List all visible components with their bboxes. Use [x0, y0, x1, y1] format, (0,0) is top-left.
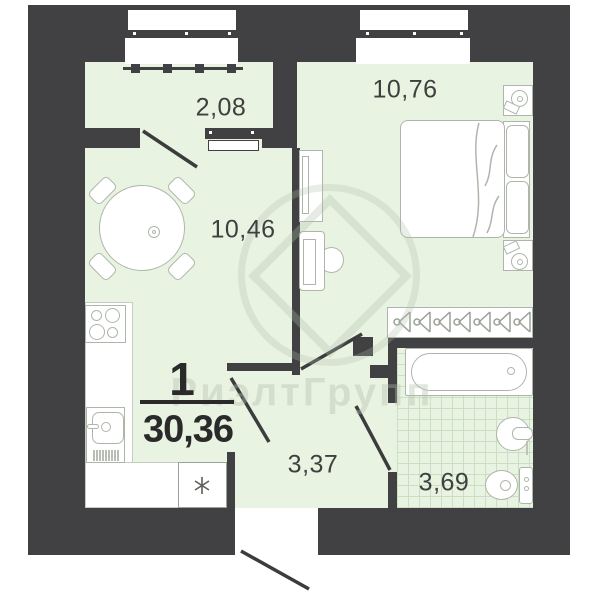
faucet-icon: [101, 422, 111, 432]
cistern-button: [524, 486, 529, 491]
area-label-bathroom: 3,69: [419, 469, 470, 498]
balcony-rail-post: [131, 64, 140, 73]
entrance-door-swing: [241, 551, 309, 589]
balcony-rail: [123, 67, 243, 70]
bedroom-window-inner: [356, 38, 470, 64]
bedroom-window-outer: [360, 10, 468, 30]
total-area-label: 30,36: [143, 409, 233, 452]
wall-balcony-bedroom: [273, 62, 297, 148]
wall-balcony-living-right: [262, 128, 273, 148]
stove-burner: [91, 310, 102, 321]
window-tick: [209, 131, 212, 134]
stove-burner: [105, 308, 120, 323]
bed-pillow: [506, 125, 529, 178]
cistern-button: [524, 477, 529, 482]
wall-right: [533, 5, 570, 555]
window-tick: [413, 32, 416, 35]
bed-mattress: [400, 120, 505, 238]
wall-top: [28, 5, 570, 62]
stove-burner: [89, 324, 105, 340]
toilet-drain: [500, 480, 511, 491]
window-tick: [251, 131, 254, 134]
wall-bathroom-top: [388, 338, 533, 348]
bathtub-drain: [507, 367, 515, 375]
washbasin-tap: [512, 427, 533, 440]
area-label-living: 10,46: [210, 216, 275, 245]
wall-bottom-left: [28, 508, 235, 555]
wall-bottom-right: [318, 508, 570, 555]
floor-plan: РиэлтГрупп 2,08 10,76 10,46 3,37 3,69 1 …: [0, 0, 600, 600]
balcony-rail-post: [163, 64, 172, 73]
window-tick: [185, 32, 188, 35]
window-tick: [366, 32, 369, 35]
window-tick: [228, 32, 231, 35]
balcony-door-panel: [208, 140, 259, 151]
dining-table: [99, 185, 185, 271]
fraction-line: [140, 400, 234, 404]
wall-kitchen-door-stub: [227, 452, 235, 508]
lamp-icon: [517, 259, 523, 265]
table-center-mark: [152, 230, 156, 234]
wall-left: [28, 5, 85, 555]
area-label-bedroom: 10,76: [372, 76, 437, 105]
balcony-rail-post: [227, 64, 236, 73]
faucet-handle: [87, 424, 99, 429]
balcony-window-outer: [128, 10, 236, 30]
rooms-count-label: 1: [169, 352, 195, 406]
appliance-box: [178, 462, 227, 508]
lamp-icon: [517, 96, 523, 102]
area-label-balcony: 2,08: [196, 94, 247, 123]
window-tick: [133, 32, 136, 35]
stove-burner: [107, 327, 118, 338]
window-tick: [460, 32, 463, 35]
balcony-window-inner: [125, 38, 238, 64]
area-label-hallway: 3,37: [288, 451, 339, 480]
balcony-rail-post: [195, 64, 204, 73]
bed-pillow: [506, 181, 529, 234]
wall-balcony-living-left: [85, 128, 140, 148]
wall-bathroom-left-lower: [388, 472, 397, 508]
